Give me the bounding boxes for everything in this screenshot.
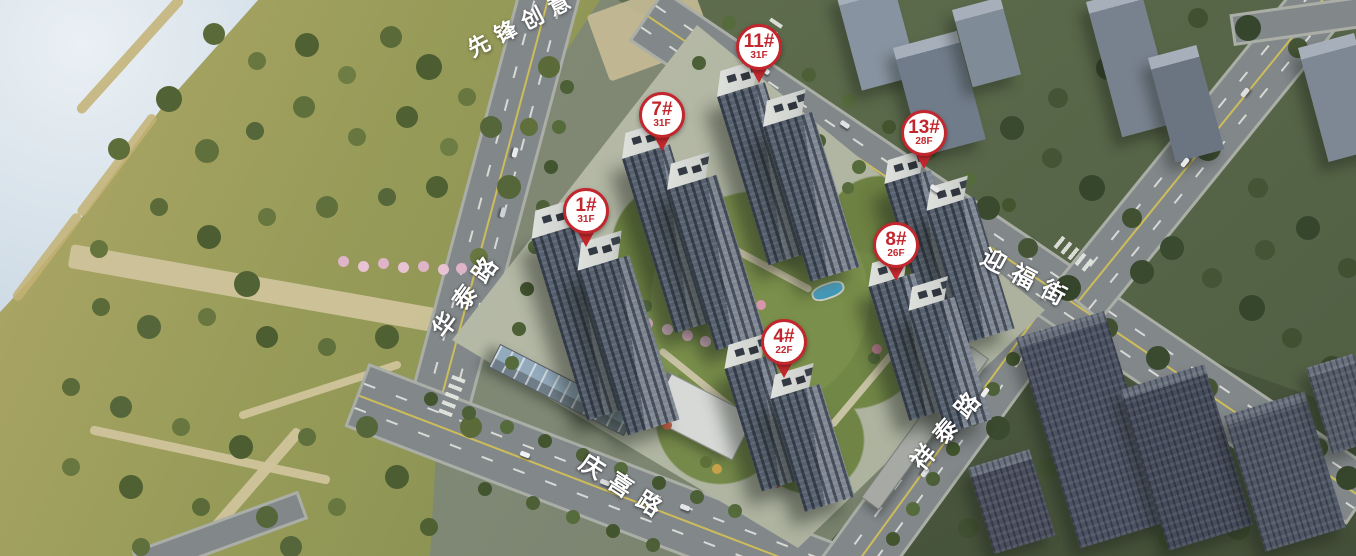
- blossom-trees: [0, 0, 11, 11]
- pin-building-number: 7#: [651, 101, 672, 118]
- pin-floor-count: 31F: [653, 118, 670, 129]
- pin-floor-count: 26F: [887, 248, 904, 259]
- pin-building-8[interactable]: 8# 26F: [873, 222, 919, 281]
- pin-building-number: 11#: [744, 33, 775, 50]
- pin-bubble: 13# 28F: [901, 110, 947, 156]
- pin-building-7[interactable]: 7# 31F: [639, 92, 685, 151]
- pin-building-4[interactable]: 4# 22F: [761, 319, 807, 378]
- aerial-site-map: 先锋创意 华泰路 庆喜路 祥泰路 迎福街 1# 31F 7# 31F 11# 3…: [0, 0, 1356, 556]
- pin-building-number: 13#: [908, 119, 940, 136]
- pin-building-13[interactable]: 13# 28F: [901, 110, 947, 169]
- pin-floor-count: 28F: [915, 136, 932, 147]
- pin-floor-count: 31F: [750, 50, 767, 61]
- pin-building-1[interactable]: 1# 31F: [563, 188, 609, 247]
- pin-bubble: 1# 31F: [563, 188, 609, 234]
- pin-floor-count: 31F: [577, 214, 594, 225]
- pin-floor-count: 22F: [775, 345, 792, 356]
- pin-building-number: 1#: [575, 197, 596, 214]
- pin-building-number: 8#: [885, 231, 906, 248]
- pin-building-number: 4#: [773, 328, 794, 345]
- pin-bubble: 4# 22F: [761, 319, 807, 365]
- pin-bubble: 11# 31F: [736, 24, 782, 70]
- pin-bubble: 7# 31F: [639, 92, 685, 138]
- pin-bubble: 8# 26F: [873, 222, 919, 268]
- pin-building-11[interactable]: 11# 31F: [736, 24, 782, 83]
